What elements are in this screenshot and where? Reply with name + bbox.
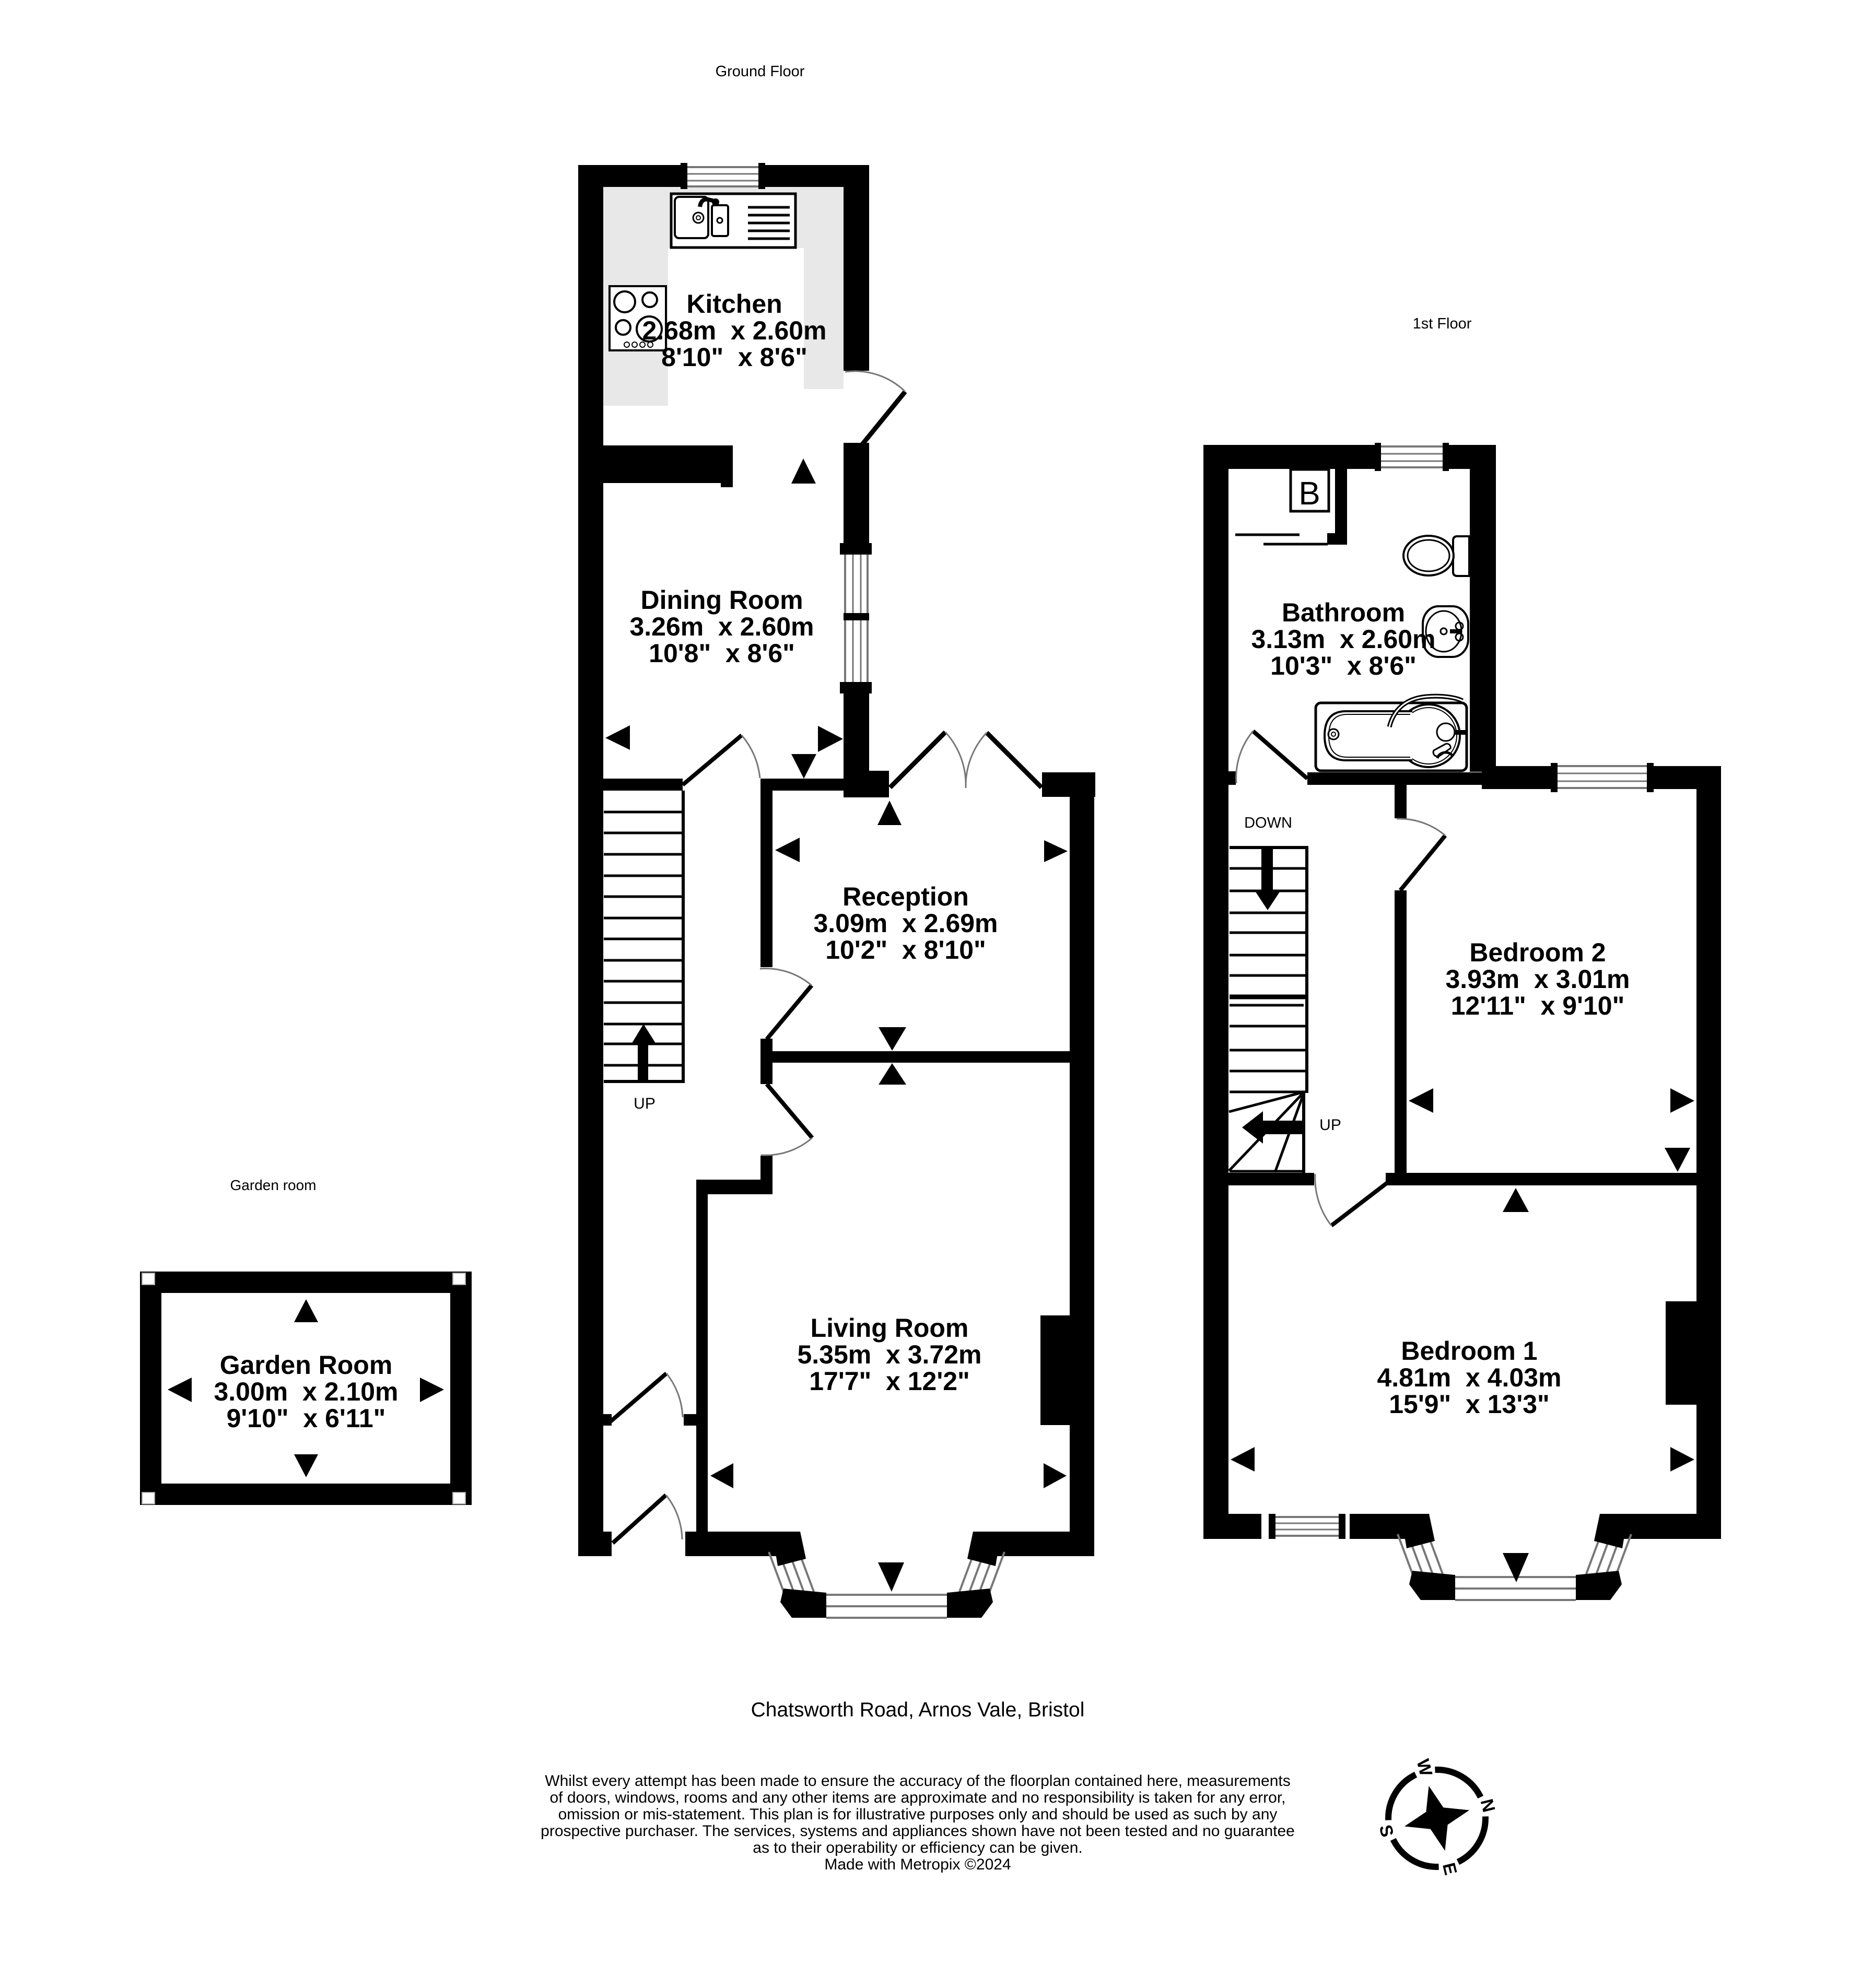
- svg-text:3.26m x 2.60m: 3.26m x 2.60m: [629, 612, 814, 641]
- svg-text:Bathroom: Bathroom: [1282, 598, 1405, 627]
- svg-text:omission or mis-statement. Thi: omission or mis-statement. This plan is …: [558, 1806, 1278, 1823]
- svg-text:Garden Room: Garden Room: [220, 1350, 393, 1380]
- svg-text:prospective purchaser. The ser: prospective purchaser. The services, sys…: [541, 1822, 1295, 1840]
- svg-text:UP: UP: [634, 1095, 656, 1112]
- svg-text:Ground Floor: Ground Floor: [716, 63, 805, 80]
- svg-text:of doors, windows, rooms and a: of doors, windows, rooms and any other i…: [549, 1789, 1285, 1806]
- svg-text:Dining Room: Dining Room: [640, 585, 803, 615]
- svg-text:1st Floor: 1st Floor: [1413, 315, 1472, 332]
- svg-text:12'11" x 9'10": 12'11" x 9'10": [1451, 991, 1625, 1020]
- svg-text:10'3" x 8'6": 10'3" x 8'6": [1270, 651, 1417, 680]
- svg-text:Garden room: Garden room: [230, 1177, 317, 1193]
- svg-text:8'10" x 8'6": 8'10" x 8'6": [661, 343, 807, 372]
- svg-text:3.93m x 3.01m: 3.93m x 3.01m: [1445, 964, 1630, 994]
- svg-text:2.68m x 2.60m: 2.68m x 2.60m: [642, 316, 826, 345]
- svg-text:3.13m x 2.60m: 3.13m x 2.60m: [1251, 625, 1435, 654]
- svg-text:Bedroom 2: Bedroom 2: [1469, 938, 1606, 967]
- svg-text:3.09m x 2.69m: 3.09m x 2.69m: [813, 909, 998, 938]
- svg-text:4.81m x 4.03m: 4.81m x 4.03m: [1377, 1363, 1561, 1392]
- svg-text:Kitchen: Kitchen: [686, 289, 782, 319]
- svg-text:3.00m x 2.10m: 3.00m x 2.10m: [214, 1377, 398, 1406]
- svg-text:Whilst every attempt has been: Whilst every attempt has been made to en…: [545, 1772, 1290, 1790]
- svg-text:15'9" x 13'3": 15'9" x 13'3": [1389, 1390, 1550, 1419]
- svg-text:DOWN: DOWN: [1244, 815, 1292, 831]
- svg-text:UP: UP: [1319, 1116, 1341, 1134]
- svg-text:as to their operability or eff: as to their operability or efficiency ca…: [753, 1839, 1082, 1856]
- svg-text:Reception: Reception: [842, 882, 969, 911]
- svg-text:Living Room: Living Room: [811, 1313, 969, 1343]
- svg-text:9'10" x 6'11": 9'10" x 6'11": [227, 1404, 386, 1433]
- svg-text:10'8" x 8'6": 10'8" x 8'6": [649, 639, 795, 668]
- svg-text:Bedroom 1: Bedroom 1: [1401, 1336, 1537, 1366]
- svg-text:B: B: [1298, 476, 1320, 512]
- svg-text:Made with Metropix ©2024: Made with Metropix ©2024: [824, 1856, 1011, 1873]
- svg-text:17'7" x 12'2": 17'7" x 12'2": [809, 1367, 970, 1396]
- svg-text:5.35m x 3.72m: 5.35m x 3.72m: [797, 1340, 981, 1369]
- svg-text:10'2" x 8'10": 10'2" x 8'10": [825, 935, 986, 964]
- svg-text:Chatsworth Road, Arnos Vale, B: Chatsworth Road, Arnos Vale, Bristol: [751, 1699, 1085, 1721]
